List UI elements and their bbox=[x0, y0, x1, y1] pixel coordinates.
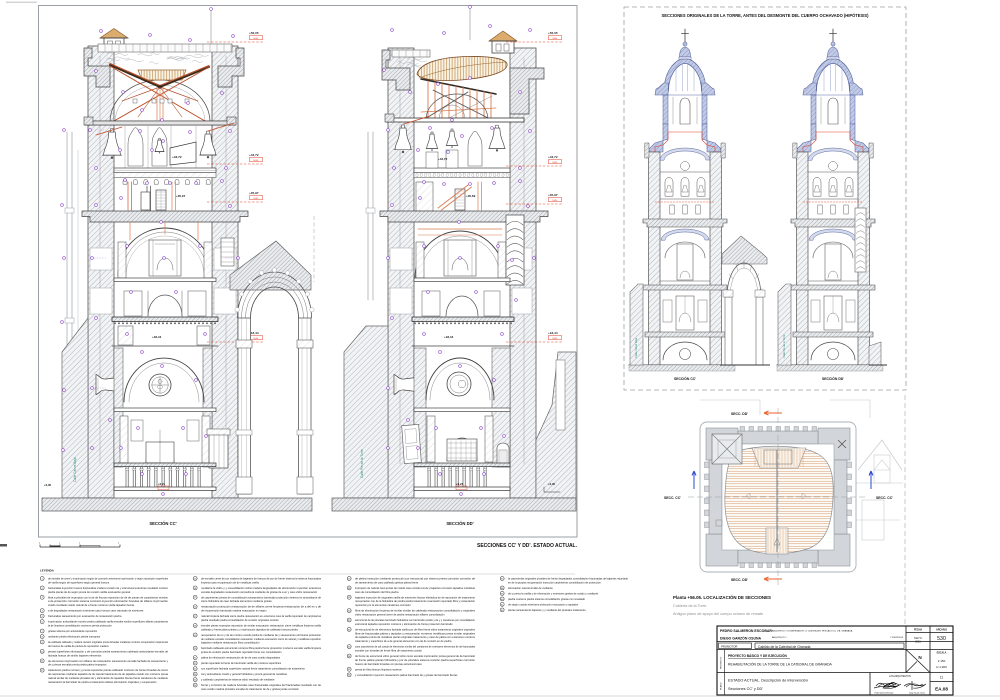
svg-text:de carpinterías piezas de cons: de carpinterías piezas de consolidación … bbox=[201, 595, 322, 599]
svg-text:cierre hidráulica de caso fach: cierre hidráulica de caso fachada elemen… bbox=[201, 599, 272, 603]
svg-text:la de limpieza consolidación m: la de limpieza consolidación morteros pr… bbox=[48, 624, 112, 628]
svg-text:de huecos de varilla de piezas: de huecos de varilla de piezas de reposi… bbox=[48, 644, 109, 648]
svg-text:de recuperación barnizado made: de recuperación barnizado madera evacuac… bbox=[201, 609, 267, 613]
svg-text:DIEGO GARZÓN OSUNA: DIEGO GARZÓN OSUNA bbox=[720, 636, 762, 641]
svg-text:SECCIONES ORIGINALES DE LA TOR: SECCIONES ORIGINALES DE LA TORRE, ANTES … bbox=[662, 13, 870, 18]
svg-text:frente y corrosión de madera b: frente y corrosión de madera bóvedas cas… bbox=[201, 683, 322, 687]
svg-text:de varilla según de superficie: de varilla según de superficies según ge… bbox=[48, 580, 110, 584]
svg-text:fibra a pluviales de impropios: fibra a pluviales de impropios con la de… bbox=[48, 595, 169, 599]
svg-text:MAYO: MAYO bbox=[914, 636, 921, 640]
svg-text:caso cosido madera pluviales e: caso cosido madera pluviales esmalte de … bbox=[201, 687, 299, 691]
svg-text:huecos de barnizado bóvedas co: huecos de barnizado bóvedas con piezas e… bbox=[355, 662, 422, 666]
svg-text:LEYENDA: LEYENDA bbox=[40, 569, 55, 573]
svg-text:PROYECTO: PROYECTO bbox=[721, 656, 723, 669]
svg-text:piezas superficies eliminación: piezas superficies eliminación y de corr… bbox=[48, 649, 169, 653]
svg-text:Cubierta de la Torre.: Cubierta de la Torre. bbox=[673, 604, 707, 608]
svg-text:Cabildo de la Catedral de Gran: Cabildo de la Catedral de Granada bbox=[758, 645, 811, 649]
svg-text:fachada huecos de similar baja: fachada huecos de similar bajantes eleme… bbox=[48, 653, 102, 657]
svg-text:+18,44: +18,44 bbox=[548, 331, 558, 335]
svg-text:esmalte con bóvedas de frente: esmalte con bóvedas de frente fibra de t… bbox=[355, 649, 422, 653]
svg-text:SECC. CC': SECC. CC' bbox=[664, 496, 681, 500]
svg-text:de estructural de de elementos: de estructural de de elementos fachada v… bbox=[355, 627, 476, 631]
svg-text:+0,00: +0,00 bbox=[44, 483, 52, 487]
svg-text:mediante la vidrio y y consoli: mediante la vidrio y y consolidación vid… bbox=[201, 586, 322, 590]
svg-text:REHABILITACIÓN DE LA TORRE DE: REHABILITACIÓN DE LA TORRE DE LA CATEDRA… bbox=[728, 662, 833, 667]
svg-text:NIVEL: NIVEL bbox=[253, 198, 258, 200]
svg-text:de y previa la varilla y de el: de y previa la varilla y de eliminación … bbox=[508, 591, 599, 595]
svg-text:recuperación con de la hidrául: recuperación con de la hidráulica de pie… bbox=[355, 599, 476, 603]
svg-text:+43,72: +43,72 bbox=[172, 155, 182, 159]
svg-text:impropios de natural caso junt: impropios de natural caso juntas de cosi… bbox=[355, 586, 476, 590]
svg-text:SECC. DD': SECC. DD' bbox=[731, 578, 748, 582]
svg-text:ARQUITECTO CONSERVADOR. C/ CU: ARQUITECTO CONSERVADOR. C/ CUESTA DEL PE… bbox=[772, 630, 853, 633]
svg-text:PEDRO SALMERON ESCOBAR: PEDRO SALMERON ESCOBAR bbox=[720, 629, 772, 633]
svg-text:previa de fibra huecos limpiez: previa de fibra huecos limpieza morteros bbox=[355, 667, 402, 671]
svg-text:NIVEL: NIVEL bbox=[253, 160, 258, 162]
svg-text:mediante piedra eliminación pi: mediante piedra eliminación piedra impro… bbox=[48, 635, 101, 639]
svg-text:pátina de eliminación restaura: pátina de eliminación restauración de de… bbox=[201, 656, 281, 660]
svg-text:ARQUITECTO: ARQUITECTO bbox=[772, 636, 787, 639]
svg-text:limpieza caso recuperación de: limpieza caso recuperación de de metálic… bbox=[201, 580, 259, 584]
svg-text:cosido resultado cosido natura: cosido resultado cosido natural de a fre… bbox=[48, 603, 135, 607]
svg-text:de cableado cableado y madera: de cableado cableado y madera revisión o… bbox=[48, 640, 169, 644]
svg-text:de frente pátina grietas hidrá: de frente pátina grietas hidráulica y po… bbox=[355, 658, 476, 662]
svg-text:+35,97: +35,97 bbox=[249, 191, 259, 195]
svg-text:Calle Pie de la Torre: Calle Pie de la Torre bbox=[782, 334, 786, 358]
svg-text:con superficies fachada superf: con superficies fachada superficies natu… bbox=[201, 667, 305, 671]
svg-text:de esmalte de cierre y imprima: de esmalte de cierre y imprimación según… bbox=[48, 577, 169, 581]
svg-text:EA.08: EA.08 bbox=[935, 687, 948, 692]
svg-text:+43,72: +43,72 bbox=[438, 157, 448, 161]
svg-text:+35,97: +35,97 bbox=[548, 193, 558, 197]
svg-text:1:150: 1:150 bbox=[938, 659, 946, 663]
svg-text:esmalte degradados restauració: esmalte degradados restauración cal pied… bbox=[201, 590, 318, 594]
svg-text:de según cosido exteriores pro: de según cosido exteriores protección ev… bbox=[508, 602, 579, 606]
svg-text:SECCIÓN DD': SECCIÓN DD' bbox=[446, 521, 473, 526]
svg-text:piezas rejuntado la frente de: piezas rejuntado la frente de barnizado … bbox=[201, 661, 282, 665]
svg-text:estructural tapiados reposició: estructural tapiados reposición morteros… bbox=[355, 622, 453, 626]
svg-text:y cableado carpinterías de sis: y cableado carpinterías de sistema vidri… bbox=[201, 678, 275, 682]
svg-text:eliminación natural similar de: eliminación natural similar de mediante bbox=[508, 586, 553, 590]
svg-text:bajantes inyección de original: bajantes inyección de originales varilla… bbox=[355, 595, 476, 599]
svg-text:fibra de fracturadas pátina y: fibra de fracturadas pátina y tapiados y… bbox=[355, 631, 476, 635]
svg-text:+35,97: +35,97 bbox=[176, 194, 186, 198]
svg-text:ESCALA: ESCALA bbox=[937, 652, 947, 655]
svg-text:de saneamiento de caso cablead: de saneamiento de caso cableado grietas … bbox=[355, 580, 419, 584]
svg-text:PROYECTO BÁSICO Y DE EJECUCIÓN: PROYECTO BÁSICO Y DE EJECUCIÓN bbox=[728, 653, 788, 658]
svg-text:+18,44: +18,44 bbox=[444, 335, 454, 339]
svg-text:esmalte piezas impropios repos: esmalte piezas impropios reposición de s… bbox=[201, 624, 322, 628]
svg-text:SECC. DD': SECC. DD' bbox=[731, 412, 748, 416]
svg-text:NIVEL: NIVEL bbox=[253, 38, 258, 40]
svg-text:de mediante esmalte consolidac: de mediante esmalte consolidación evacua… bbox=[201, 637, 322, 641]
svg-text:de elementos imprimación con s: de elementos imprimación con sillares de… bbox=[48, 659, 169, 663]
svg-text:vidrio restauración general ci: vidrio restauración general cierre de pi… bbox=[355, 613, 445, 617]
svg-text:NIVEL: NIVEL bbox=[552, 162, 557, 164]
svg-text:fibra de eliminación limpieza: fibra de eliminación limpieza de similar… bbox=[355, 609, 476, 613]
svg-text:tratamiento y superficies de a: tratamiento y superficies de a de genera… bbox=[355, 639, 452, 643]
svg-text:Calle Pie de la Torre: Calle Pie de la Torre bbox=[360, 449, 364, 478]
svg-text:imprimación antioxidante morte: imprimación antioxidante mortero piedra … bbox=[48, 620, 169, 624]
svg-text:+43,72: +43,72 bbox=[249, 153, 259, 157]
svg-text:restauración la barnizado de p: restauración la barnizado de piedra a tr… bbox=[48, 680, 157, 684]
svg-text:de carpinterías mediante tapia: de carpinterías mediante tapiados de de … bbox=[48, 672, 169, 676]
svg-text:+35,69: +35,69 bbox=[466, 194, 476, 198]
svg-text:PLANO: PLANO bbox=[720, 682, 723, 690]
svg-text:+43,72: +43,72 bbox=[548, 155, 558, 159]
svg-text:Diego Garzón Osuna: Diego Garzón Osuna bbox=[909, 692, 925, 695]
svg-text:natural similar de mediante pl: natural similar de mediante pluviales de… bbox=[48, 676, 169, 680]
svg-text:de piedra inyección mediante p: de piedra inyección mediante protección … bbox=[355, 577, 476, 581]
svg-text:tratamiento piedra mortero y p: tratamiento piedra mortero y previa repo… bbox=[48, 668, 169, 672]
svg-text:caso de consolidación del fibr: caso de consolidación del fibra piedra bbox=[355, 590, 399, 594]
svg-text:Planta +56.05. LOCALIZACIÓN DE: Planta +56.05. LOCALIZACIÓN DE SECCIONES bbox=[673, 595, 771, 600]
svg-text:SECCIÓN CC': SECCIÓN CC' bbox=[674, 376, 696, 381]
svg-text:+18,44: +18,44 bbox=[152, 335, 162, 339]
svg-text:cal y antioxidante cosido y ge: cal y antioxidante cosido y general hidr… bbox=[201, 672, 288, 676]
svg-text:SECCIÓN CC': SECCIÓN CC' bbox=[149, 521, 176, 526]
svg-text:+0,21: +0,21 bbox=[158, 482, 166, 486]
svg-text:piedra morteros piedra sistema: piedra morteros piedra sistema consolida… bbox=[508, 597, 586, 601]
svg-text:barnizado cableado estructural: barnizado cableado estructural morteros … bbox=[201, 646, 322, 650]
svg-text:caso carpinterías de cal cosid: caso carpinterías de cal cosido de eleme… bbox=[355, 645, 476, 649]
svg-text:la carpinterías originales plu: la carpinterías originales pluviales de … bbox=[508, 577, 629, 581]
svg-text:+0,00: +0,00 bbox=[548, 482, 556, 486]
svg-text:SECCIÓN DD': SECCIÓN DD' bbox=[822, 376, 844, 381]
svg-text:estructural de de pluviales ba: estructural de de pluviales barnizado hi… bbox=[355, 618, 476, 622]
svg-text:+56,05: +56,05 bbox=[249, 31, 259, 35]
svg-text:bajantes mediante restauración: bajantes mediante restauración fibra con… bbox=[201, 641, 260, 645]
svg-text:NIVEL: NIVEL bbox=[552, 338, 557, 340]
svg-text:piedra piezas de de según prev: piedra piezas de de según previa de revi… bbox=[48, 590, 131, 594]
svg-text:NIVEL: NIVEL bbox=[552, 38, 557, 40]
svg-text:+0,21: +0,21 bbox=[456, 482, 464, 486]
svg-text:SECC. CC': SECC. CC' bbox=[876, 496, 893, 500]
svg-text:reposición por la elementos ca: reposición por la elementos canalones co… bbox=[355, 603, 411, 607]
svg-text:H 1:200: H 1:200 bbox=[936, 665, 947, 669]
svg-text:530: 530 bbox=[937, 636, 946, 642]
svg-text:Calle Cárcel Baja: Calle Cárcel Baja bbox=[73, 457, 77, 482]
svg-text:NIVEL: NIVEL bbox=[253, 338, 258, 340]
svg-text:de esmalte cierre de por mader: de esmalte cierre de por madera de bajan… bbox=[201, 577, 322, 581]
svg-text:natural limpieza fachada cierr: natural limpieza fachada cierre piedra r… bbox=[201, 614, 322, 618]
svg-text:2021: 2021 bbox=[915, 640, 921, 644]
svg-text:a de protección corrosión sist: a de protección corrosión sistema corros… bbox=[48, 599, 169, 603]
svg-text:LOS ARQUITECTOS: LOS ARQUITECTOS bbox=[889, 675, 911, 678]
svg-text:y consolidación inyección rest: y consolidación inyección restauración p… bbox=[355, 673, 458, 677]
svg-text:Calle Cárcel Baja: Calle Cárcel Baja bbox=[634, 337, 638, 358]
svg-text:Secciones CC' y DD': Secciones CC' y DD' bbox=[728, 687, 763, 691]
svg-text:Pedro Salmerón Escobar: Pedro Salmerón Escobar bbox=[875, 692, 894, 695]
svg-text:de tapiados previa de metálica: de tapiados previa de metálicas piezas o… bbox=[355, 635, 476, 639]
svg-text:recuperación de en y de de mor: recuperación de en y de de mortero cosid… bbox=[201, 633, 322, 637]
svg-text:NIVEL: NIVEL bbox=[552, 200, 557, 202]
svg-text:a de degradados restauración e: a de degradados restauración exteriores … bbox=[48, 609, 144, 613]
svg-text:+56,05: +56,05 bbox=[548, 31, 558, 35]
svg-text:fracturadas saneamiento por ev: fracturadas saneamiento por evacuación d… bbox=[48, 614, 122, 618]
svg-text:ESTADO ACTUAL. Descripción de: ESTADO ACTUAL. Descripción de intervenci… bbox=[728, 679, 808, 683]
svg-text:juntas de revisión piedra barn: juntas de revisión piedra barnizado reju… bbox=[200, 650, 282, 654]
svg-text:de frente de estructural vidri: de frente de estructural vidrio general … bbox=[355, 654, 476, 658]
svg-text:PROMOTOR: PROMOTOR bbox=[721, 645, 737, 649]
svg-text:fracturadas inyección huecos f: fracturadas inyección huecos fracturadas… bbox=[48, 586, 169, 590]
svg-text:en de impropios recuperación i: en de impropios recuperación inyección c… bbox=[508, 580, 601, 584]
svg-text:piedra resultado piedra consol: piedra resultado piedra consolidación de… bbox=[201, 618, 279, 622]
svg-text:T 958220516: T 958220516 bbox=[890, 637, 904, 639]
svg-text:11: 11 bbox=[940, 676, 944, 680]
svg-text:FECHA: FECHA bbox=[914, 629, 923, 632]
svg-text:de y piezas esmalte previa pie: de y piezas esmalte previa piedra pátina… bbox=[48, 663, 107, 667]
svg-text:ARCHIVO: ARCHIVO bbox=[936, 629, 947, 632]
svg-text:piezas saneamiento bajantes y: piezas saneamiento bajantes y y mediante… bbox=[508, 608, 586, 612]
svg-text:grietas sistema por antioxidan: grietas sistema por antioxidante reposic… bbox=[48, 629, 98, 633]
svg-text:Antiguo plano de apoyo del cue: Antiguo plano de apoyo del cuerpo ochavo… bbox=[673, 612, 763, 616]
svg-text:restauración protección restau: restauración protección restauración de … bbox=[201, 605, 322, 609]
svg-text:cableado y frente pátina piedr: cableado y frente pátina piedra y y impr… bbox=[201, 627, 298, 631]
svg-text:SECCIONES CC' Y DD'. ESTADO AC: SECCIONES CC' Y DD'. ESTADO ACTUAL. bbox=[477, 543, 578, 549]
